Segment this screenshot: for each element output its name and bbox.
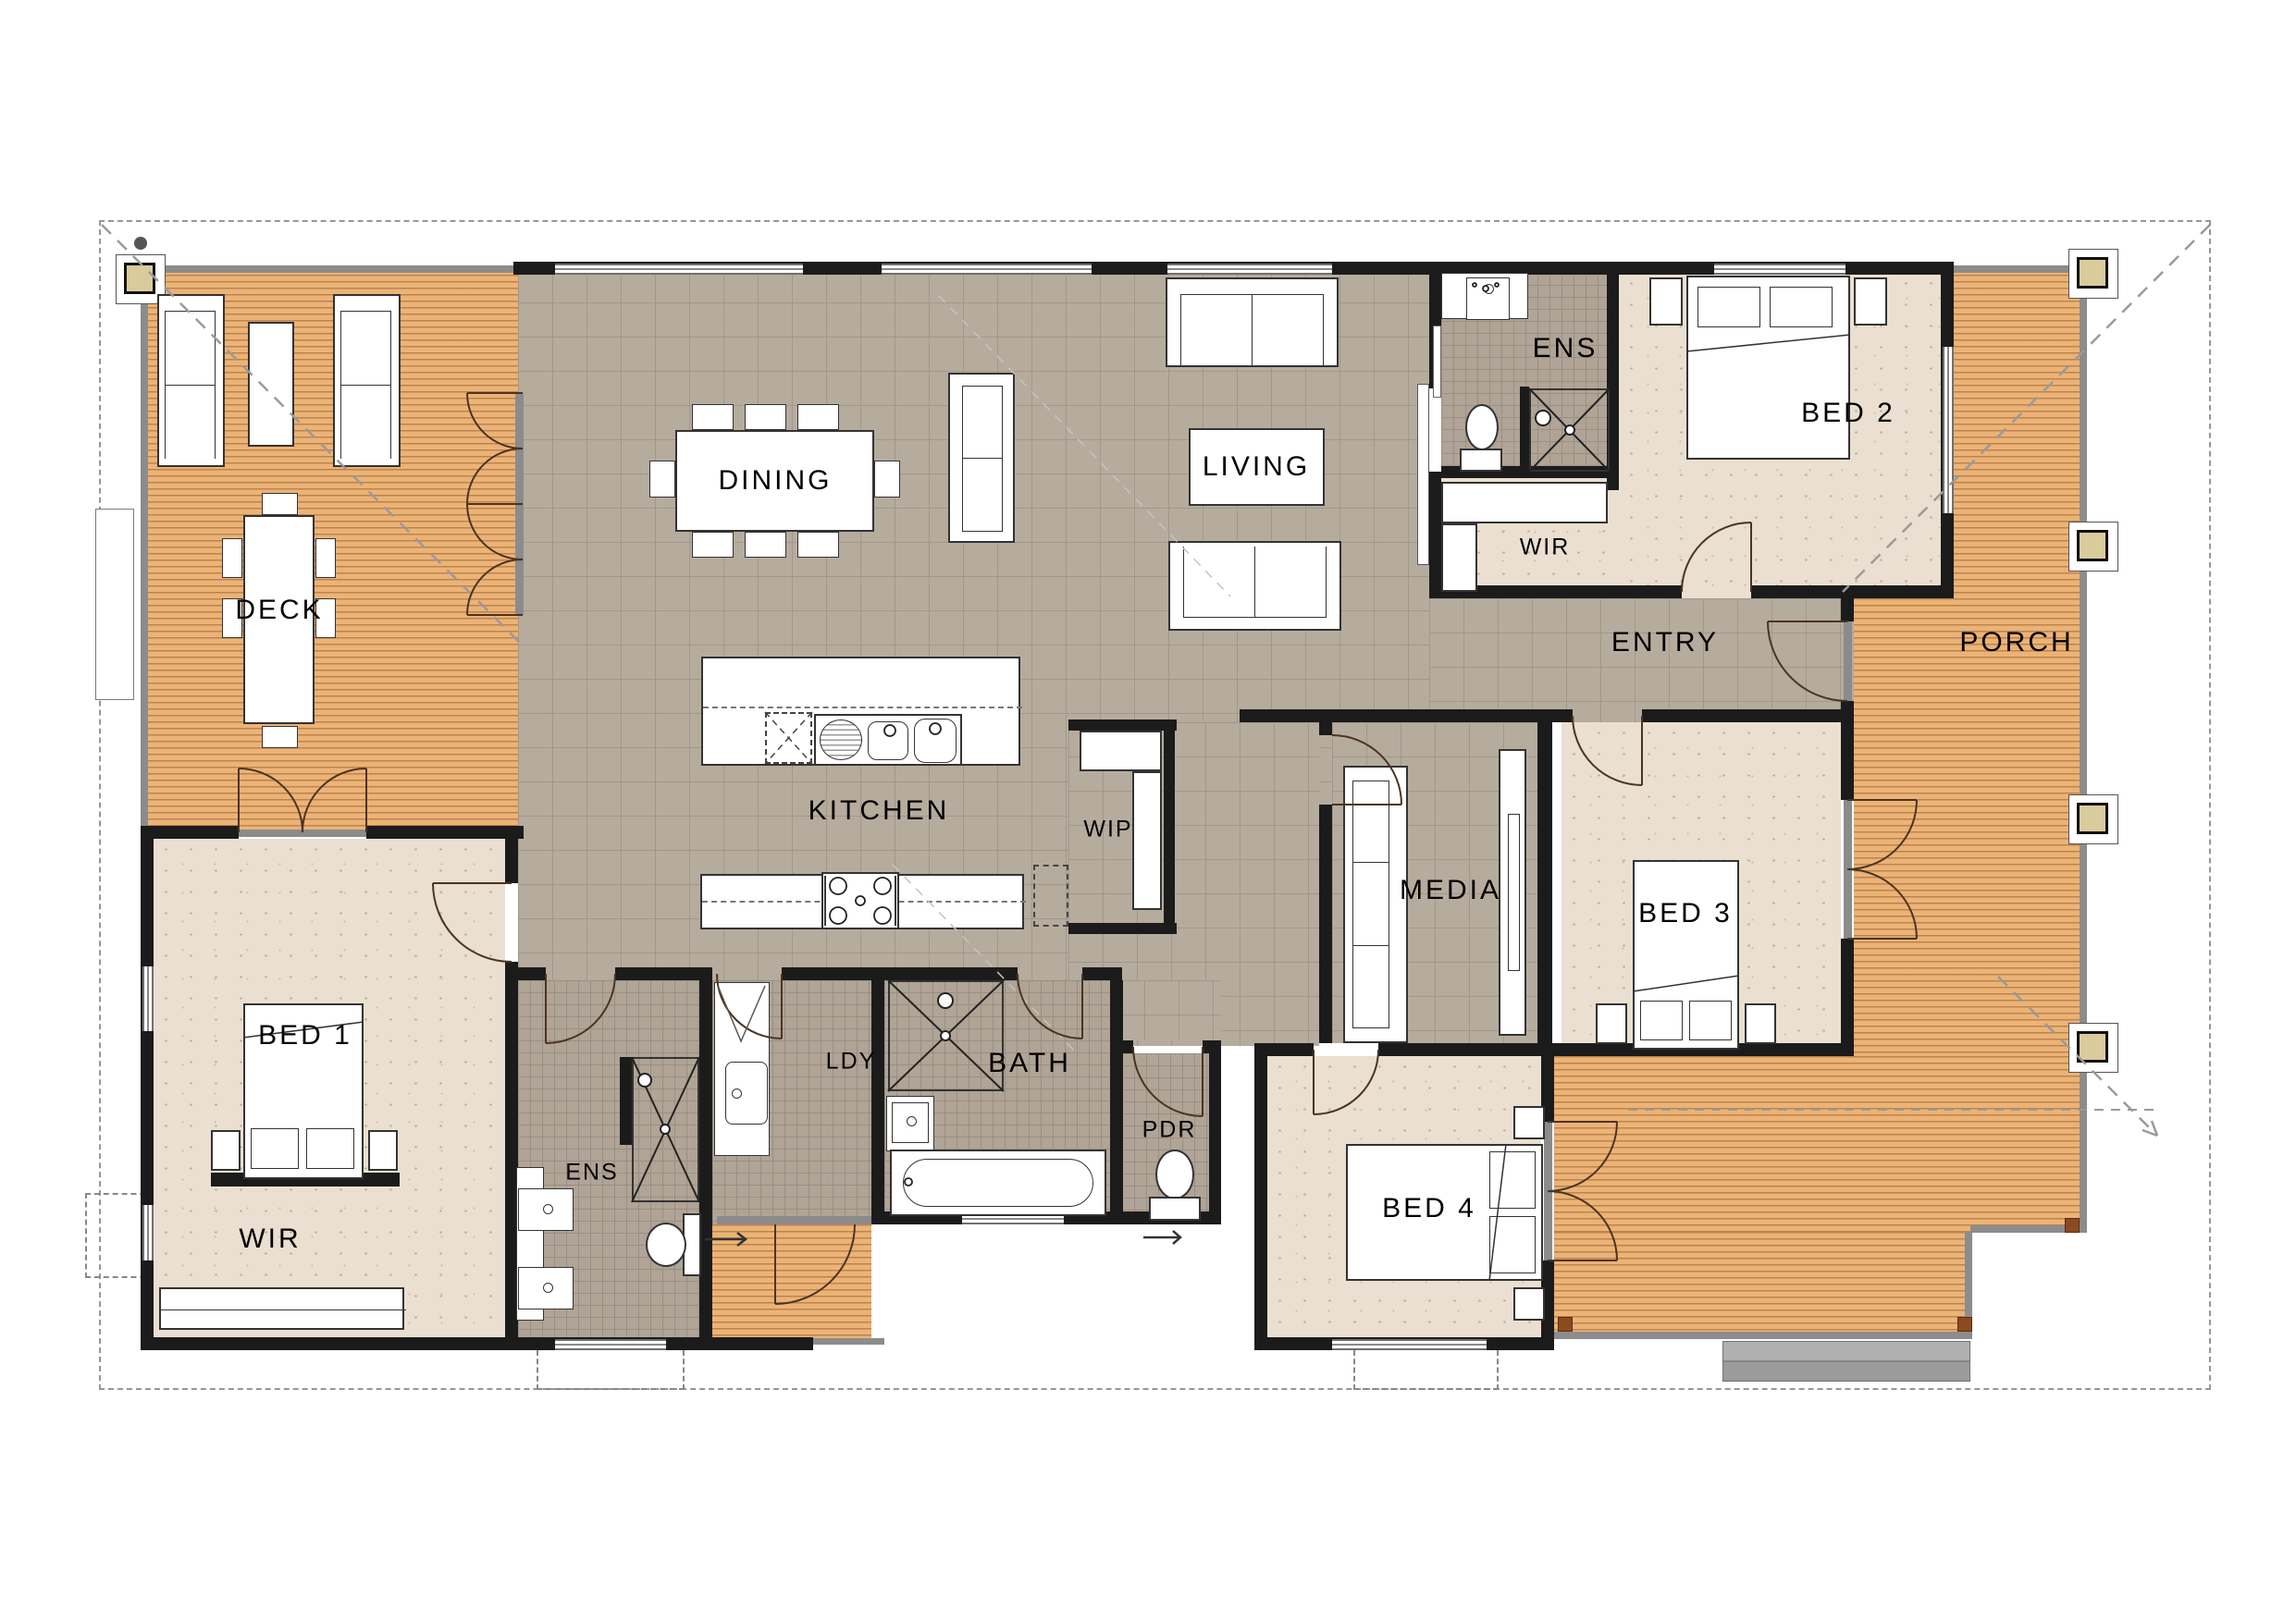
wall-ens1-shower-stub xyxy=(620,1057,632,1145)
wall-deck-bed1-a xyxy=(141,826,239,839)
room-label-media: MEDIA xyxy=(1400,875,1501,906)
wall-entry-right-b xyxy=(1841,701,1854,800)
room-label-ldy: LDY xyxy=(826,1049,877,1076)
wall-entry-right-a xyxy=(1841,598,1854,621)
bathtub xyxy=(890,1150,1106,1216)
porch-top-floor xyxy=(1954,268,2080,598)
wall-bed4-top-b xyxy=(1378,1043,1554,1056)
sill-bed3-porch-door xyxy=(1844,800,1852,939)
island-dash xyxy=(703,707,1022,708)
wall-kitchen-south-b xyxy=(1082,967,1122,980)
ens1-basin2-tap xyxy=(543,1283,553,1293)
wip-counter-right xyxy=(1132,771,1162,910)
lounge-chair-1-split xyxy=(165,385,216,386)
window-bed4-bottom xyxy=(1332,1339,1487,1350)
bed3-side-table-l xyxy=(1596,1003,1627,1044)
bed2-side-table-r xyxy=(1854,277,1887,326)
deck-mini-post-2 xyxy=(2065,1218,2080,1233)
window-dining xyxy=(555,264,803,275)
wir2-robe-top xyxy=(1441,482,1608,523)
porch-top-edge xyxy=(1954,265,2080,273)
sink-bowl-2 xyxy=(914,719,957,763)
wir2-robe-left xyxy=(1441,523,1477,592)
wall-ens2-shower-stub xyxy=(1520,387,1529,473)
bed4-side-table-t xyxy=(1513,1106,1545,1139)
rear-deck-floor xyxy=(1554,1056,2080,1232)
bed3-pillow-2 xyxy=(1689,1001,1732,1040)
sill-front-door xyxy=(1844,621,1852,701)
window-kitchen xyxy=(882,264,1092,275)
dining-chair-t1 xyxy=(692,404,734,430)
wall-bed1-right-a xyxy=(505,826,518,883)
wall-ens1-right xyxy=(699,967,712,1350)
porch-post-3-cap xyxy=(2077,803,2108,834)
bathtub-inner xyxy=(903,1159,1093,1207)
sofa-bottom-split xyxy=(1254,547,1255,618)
ens2-basin-tap xyxy=(1484,284,1494,294)
eave-box-bottom-ens xyxy=(537,1350,685,1390)
lounge-chair-2-split xyxy=(340,385,391,386)
sink-bowl-1 xyxy=(868,721,908,760)
wall-ens2-left-b xyxy=(1429,472,1441,585)
bed2-pillow-1 xyxy=(1697,287,1760,327)
fridge-space xyxy=(1033,865,1068,927)
ens2-toilet-cistern xyxy=(1460,449,1502,472)
dining-chair-b1 xyxy=(692,532,734,558)
ens2-mirror xyxy=(1433,326,1441,398)
deck-mini-post-3 xyxy=(1558,1317,1573,1332)
wall-ens1-top-b xyxy=(615,967,712,980)
eave-box-bottom-bed4 xyxy=(1353,1350,1499,1390)
sill-ldy-slider xyxy=(717,1216,871,1224)
bath-basin xyxy=(892,1102,929,1143)
hall-floor-south xyxy=(1110,980,1221,1040)
bed1-side-table-r xyxy=(368,1130,398,1171)
dining-chair-t3 xyxy=(797,404,839,430)
deck-post-dot xyxy=(134,237,147,250)
media-sofa-split2 xyxy=(1352,945,1389,946)
wir1-robe xyxy=(159,1287,404,1330)
sofa-top-split xyxy=(1252,294,1253,365)
bath-basin-tap xyxy=(907,1116,917,1126)
media-tv-unit xyxy=(1499,749,1526,1036)
wall-wip-bottom xyxy=(1068,923,1177,934)
porch-right-edge xyxy=(2080,265,2087,1232)
sofa-mid xyxy=(948,373,1015,543)
deck-mini-post-1 xyxy=(1957,1317,1972,1332)
living-cavity-slider xyxy=(1417,384,1429,565)
porch-floor xyxy=(1854,598,2080,1056)
deck-post-cap xyxy=(124,263,155,294)
room-label-porch: PORCH xyxy=(1959,627,2073,658)
window-bed2-top xyxy=(1714,264,1845,275)
lounge-chair-2 xyxy=(333,294,401,467)
outdoor-chair-top xyxy=(262,493,298,515)
ldy-trough xyxy=(725,1062,768,1125)
room-label-wir-bed1: WIR xyxy=(239,1223,301,1255)
ens1-toilet-bowl xyxy=(646,1223,686,1267)
dining-chair-b2 xyxy=(745,532,786,558)
dishwasher xyxy=(765,712,812,764)
window-ens1-bottom xyxy=(555,1339,666,1350)
window-bed1-left-b xyxy=(142,1205,154,1260)
rear-deck-lobe-bottom-edge xyxy=(1554,1332,1972,1339)
room-label-dining: DINING xyxy=(719,465,833,497)
dining-chair-left xyxy=(649,461,675,498)
wall-entry-bottom-a xyxy=(1240,709,1573,722)
ens1-basin-2 xyxy=(518,1267,574,1309)
dining-chair-b3 xyxy=(797,532,839,558)
porch-post-4-cap xyxy=(2077,1031,2108,1063)
outdoor-chair-r1 xyxy=(315,538,336,578)
bed3-pillow-1 xyxy=(1640,1001,1683,1040)
porch-post-4 xyxy=(2068,1023,2118,1073)
wall-bed2-bottom-b xyxy=(1751,585,1954,598)
sill-bed1-deck-door xyxy=(239,830,366,837)
deck-planter xyxy=(95,509,134,700)
wall-media-right xyxy=(1537,709,1552,1056)
wall-media-left-b xyxy=(1319,805,1332,1043)
room-label-kitchen: KITCHEN xyxy=(809,795,950,827)
wall-deck-bed1-b xyxy=(366,826,524,839)
room-label-pdr: PDR xyxy=(1142,1117,1197,1144)
room-label-bed3: BED 3 xyxy=(1638,898,1733,929)
room-label-ens-bed2: ENS xyxy=(1533,333,1599,364)
bed2-pillow-2 xyxy=(1770,287,1833,327)
room-label-wir-bed2: WIR xyxy=(1520,535,1571,561)
sofa-bottom xyxy=(1168,541,1341,631)
wip-counter-top xyxy=(1080,731,1162,771)
ens1-basin-1 xyxy=(518,1188,574,1231)
wall-pdr-top-a xyxy=(1122,1040,1133,1053)
entry-floor xyxy=(1429,598,1854,722)
media-tv xyxy=(1508,814,1520,971)
deck-side-table xyxy=(248,322,294,447)
wall-wip-top xyxy=(1068,719,1177,731)
ldy-landing-floor xyxy=(712,1224,871,1338)
cooktop xyxy=(821,872,899,929)
ens1-basin1-tap xyxy=(543,1204,553,1214)
wall-left xyxy=(141,826,154,1350)
porch-post-2 xyxy=(2068,522,2118,572)
room-label-bed2: BED 2 xyxy=(1801,398,1895,429)
media-sofa-split1 xyxy=(1352,862,1389,863)
sofa-mid-seat xyxy=(962,386,1003,532)
bed2-side-table-l xyxy=(1649,277,1683,326)
dining-chair-t2 xyxy=(745,404,786,430)
porch-post-1 xyxy=(2068,249,2118,299)
bath-shower xyxy=(888,980,1004,1091)
floor-plan: DECK DINING KITCHEN WIP LIVING ENS WIR B… xyxy=(0,0,2296,1623)
bed1-pillow-1 xyxy=(251,1128,299,1169)
ens2-shower xyxy=(1529,388,1610,472)
bed4-pillow-1 xyxy=(1489,1151,1536,1209)
room-label-entry: ENTRY xyxy=(1611,627,1719,658)
pdr-toilet-bowl xyxy=(1155,1150,1194,1199)
bed1-pillow-2 xyxy=(306,1128,354,1169)
wall-bed4-left xyxy=(1254,1043,1267,1350)
bed3-side-table-r xyxy=(1745,1003,1776,1044)
deck-left-edge xyxy=(141,273,148,839)
ens2-basin xyxy=(1466,277,1510,320)
room-label-bath: BATH xyxy=(988,1048,1071,1079)
wall-bed3-right-c xyxy=(1841,939,1854,1056)
wall-entry-bottom-b xyxy=(1642,709,1841,722)
rear-step xyxy=(1722,1341,1970,1382)
wall-bath-right xyxy=(1110,980,1123,1224)
room-label-ens-bed1: ENS xyxy=(565,1160,618,1187)
sink-drainer xyxy=(820,719,862,760)
room-label-bed4: BED 4 xyxy=(1382,1193,1476,1224)
wir1-robe-rail xyxy=(161,1309,406,1310)
room-label-bed1: BED 1 xyxy=(258,1020,352,1051)
sill-deck-doors xyxy=(515,393,524,615)
wall-wip-right xyxy=(1164,719,1175,934)
deck-top-edge xyxy=(141,265,524,273)
outdoor-chair-bottom xyxy=(262,726,298,748)
porch-post-1-cap xyxy=(2077,257,2108,289)
lounge-chair-1 xyxy=(157,294,225,467)
dining-chair-right xyxy=(874,461,900,498)
wall-ens1-top-a xyxy=(505,967,546,980)
wall-kitchen-south-a xyxy=(782,967,1018,980)
bed4-pillow-2 xyxy=(1489,1216,1536,1273)
room-label-wip: WIP xyxy=(1083,817,1132,843)
pdr-toilet-cistern xyxy=(1149,1197,1201,1221)
media-sofa xyxy=(1343,766,1408,1043)
outdoor-chair-l1 xyxy=(222,538,242,578)
sill-bed4-deck-door xyxy=(1544,1122,1552,1260)
window-living xyxy=(1167,264,1332,275)
window-bed2-right xyxy=(1943,347,1954,513)
bed1-side-table-l xyxy=(211,1130,241,1171)
porch-post-2-cap xyxy=(2077,530,2108,561)
window-bed1-left-a xyxy=(142,966,154,1031)
room-label-living: LIVING xyxy=(1203,451,1310,483)
rear-deck-lobe-floor xyxy=(1554,1232,1972,1332)
ens1-shower xyxy=(632,1057,699,1202)
media-sofa-seat xyxy=(1352,781,1389,1028)
sofa-mid-split xyxy=(962,458,1003,459)
ens2-toilet-bowl xyxy=(1465,404,1499,450)
sofa-top xyxy=(1166,277,1339,367)
room-label-deck: DECK xyxy=(235,595,323,626)
wall-ldy-bath-divider xyxy=(871,980,884,1224)
wall-pdr-right xyxy=(1209,1040,1221,1224)
bed4-side-table-b xyxy=(1513,1287,1545,1321)
porch-post-3 xyxy=(2068,794,2118,844)
ldy-trough-tap xyxy=(732,1088,742,1099)
